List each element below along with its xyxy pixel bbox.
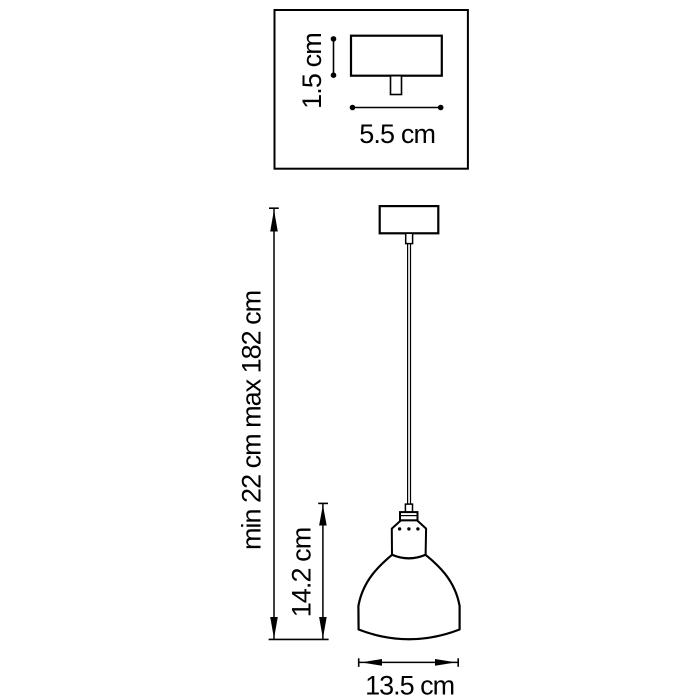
svg-text:5.5 cm: 5.5 cm	[359, 119, 435, 149]
svg-text:1.5 cm: 1.5 cm	[297, 33, 327, 109]
svg-text:min 22 cm max 182 cm: min 22 cm max 182 cm	[237, 291, 267, 550]
svg-text:14.2 cm: 14.2 cm	[286, 528, 316, 618]
svg-text:13.5 cm: 13.5 cm	[365, 670, 454, 700]
